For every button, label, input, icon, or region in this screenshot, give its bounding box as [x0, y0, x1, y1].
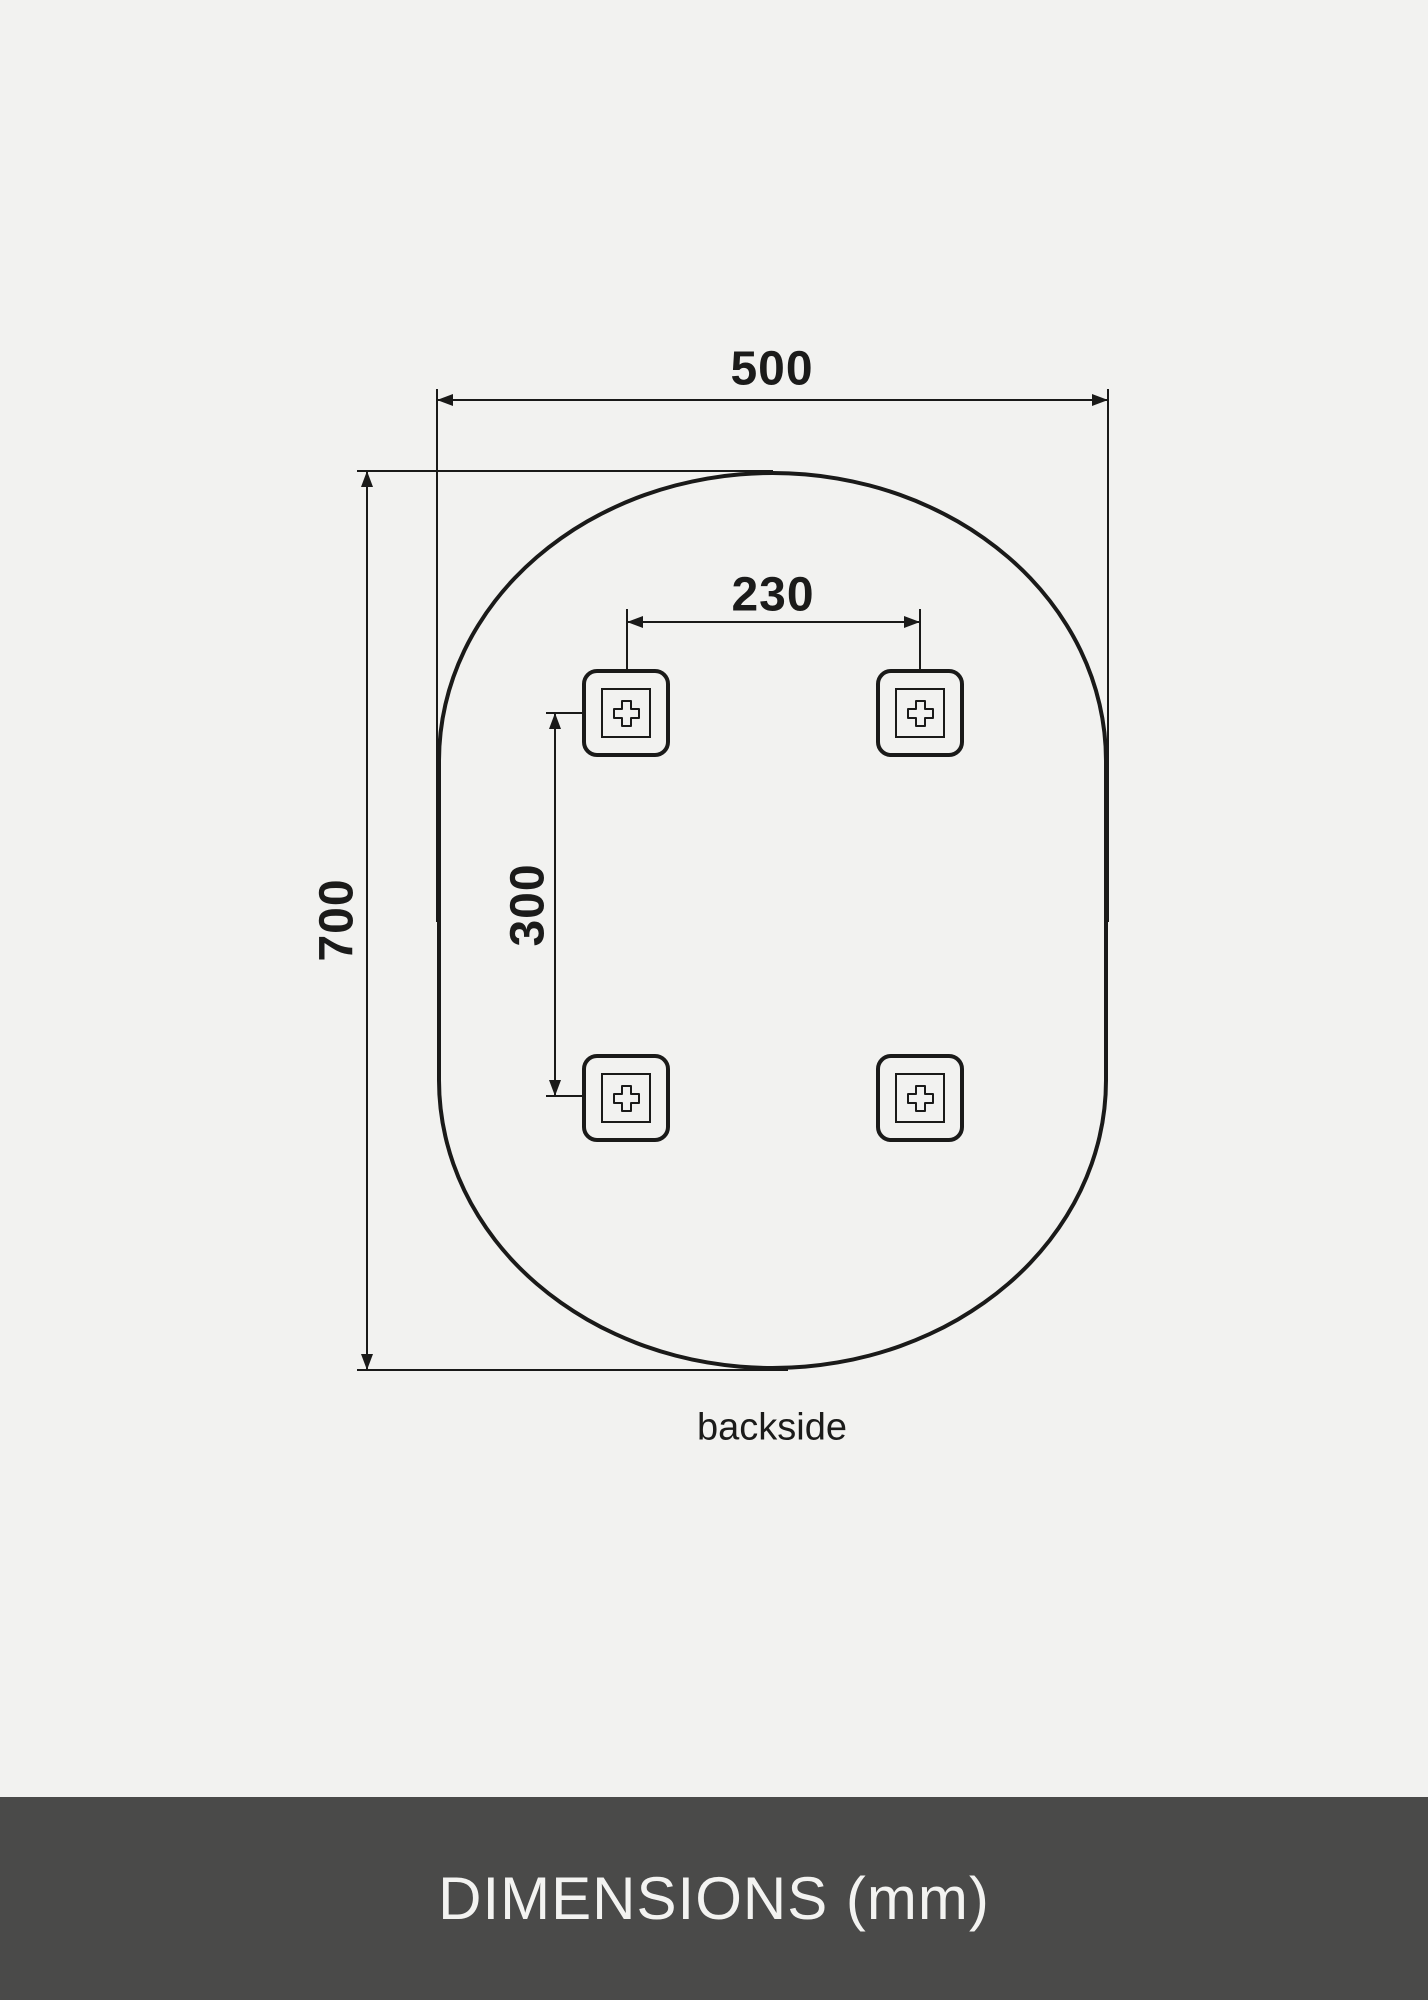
bracket-spacing-horizontal-line	[627, 621, 920, 623]
bracket-inner-square	[601, 1073, 651, 1123]
bracket-spacing-horizontal-label: 230	[731, 568, 814, 623]
width-dimension-label: 500	[730, 342, 813, 397]
mounting-bracket-top-left	[582, 669, 670, 757]
arrow-down-icon	[549, 1080, 561, 1096]
footer-bar: DIMENSIONS (mm)	[0, 1797, 1428, 2000]
plus-icon	[613, 700, 640, 727]
height-extension-line-top	[357, 470, 773, 472]
bracket-extension-line-left	[626, 609, 628, 669]
arrow-down-icon	[361, 1354, 373, 1370]
width-dimension-line	[437, 399, 1108, 401]
height-dimension-label: 700	[310, 878, 365, 961]
mounting-bracket-bottom-left	[582, 1054, 670, 1142]
bracket-spacing-vertical-line	[554, 713, 556, 1096]
bracket-spacing-vertical-label: 300	[501, 863, 556, 946]
mounting-bracket-top-right	[876, 669, 964, 757]
bracket-inner-square	[895, 1073, 945, 1123]
plus-icon	[907, 1085, 934, 1112]
mounting-bracket-bottom-right	[876, 1054, 964, 1142]
plus-icon	[907, 700, 934, 727]
arrow-right-icon	[904, 616, 920, 628]
mirror-dimension-diagram: 500 700 230 300	[0, 0, 1428, 2000]
bracket-connector-line-top	[546, 712, 582, 714]
width-extension-line-left	[436, 389, 438, 922]
view-label: backside	[697, 1407, 847, 1450]
arrow-up-icon	[361, 471, 373, 487]
bracket-inner-square	[601, 688, 651, 738]
height-extension-line-bottom	[357, 1369, 788, 1371]
width-extension-line-right	[1107, 389, 1109, 922]
footer-title: DIMENSIONS (mm)	[438, 1864, 990, 1933]
arrow-right-icon	[1092, 394, 1108, 406]
arrow-up-icon	[549, 713, 561, 729]
arrow-left-icon	[627, 616, 643, 628]
height-dimension-line	[366, 471, 368, 1370]
bracket-extension-line-right	[919, 609, 921, 669]
bracket-inner-square	[895, 688, 945, 738]
bracket-connector-line-bottom	[546, 1095, 582, 1097]
arrow-left-icon	[437, 394, 453, 406]
plus-icon	[613, 1085, 640, 1112]
